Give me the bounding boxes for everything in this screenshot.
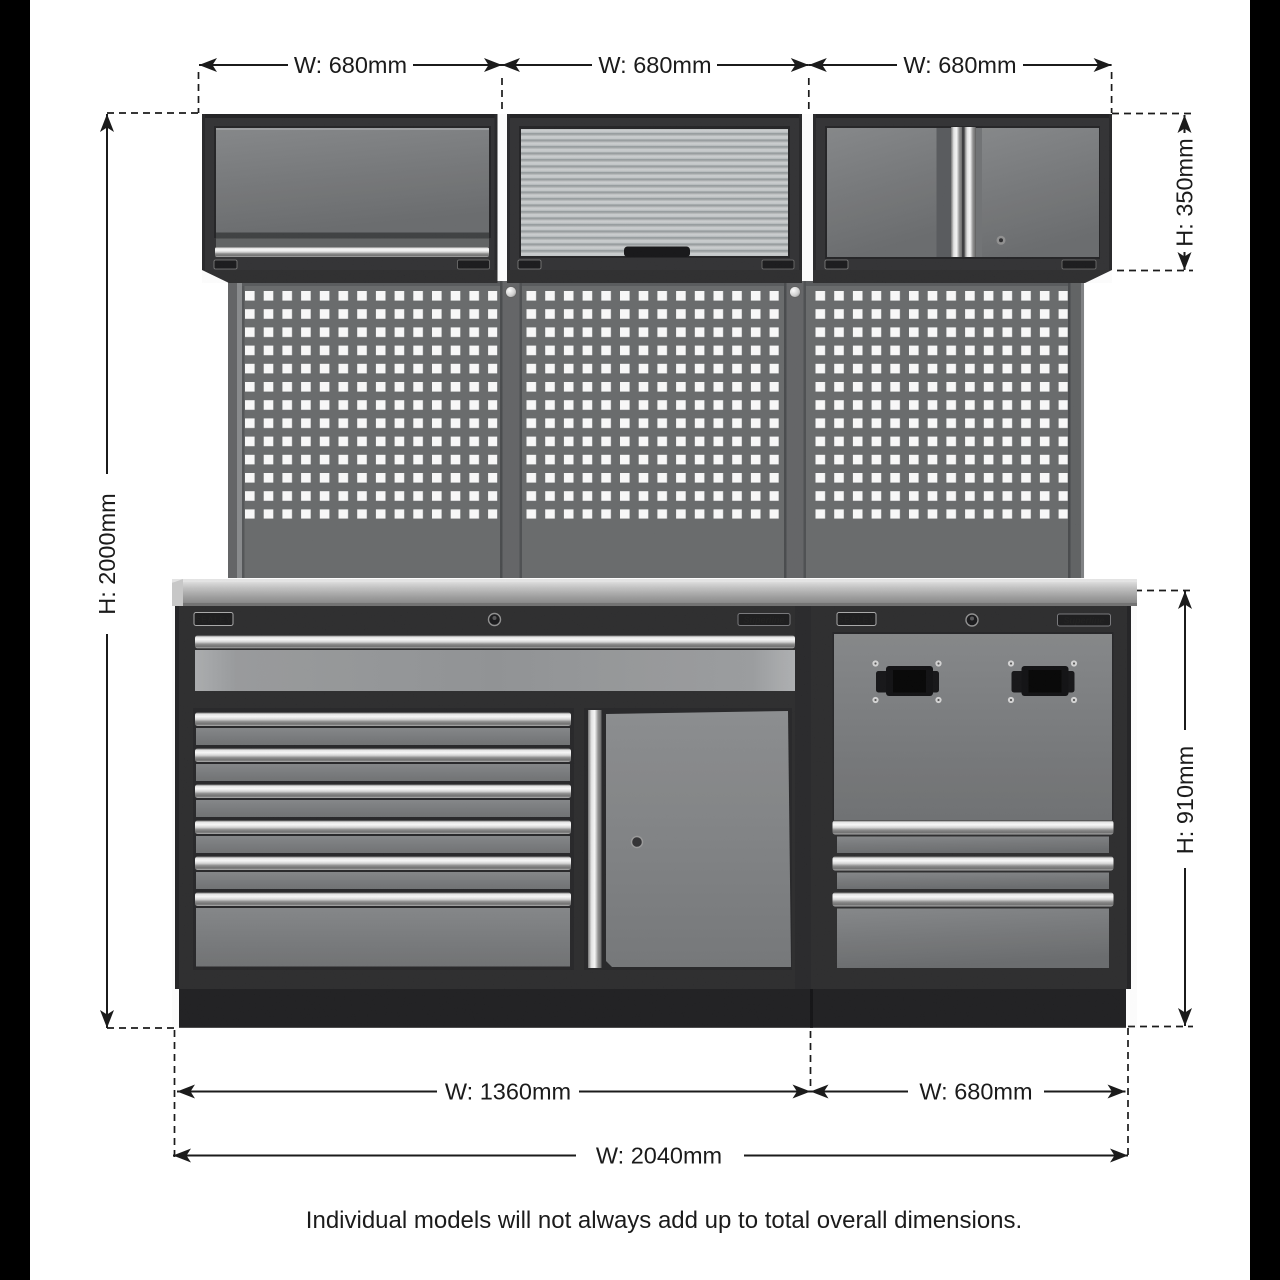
svg-text:W: 2040mm: W: 2040mm — [596, 1143, 722, 1169]
svg-text:H: 910mm: H: 910mm — [1172, 746, 1198, 854]
svg-text:W: 680mm: W: 680mm — [919, 1079, 1032, 1105]
svg-text:Individual models will not alw: Individual models will not always add up… — [306, 1207, 1022, 1234]
svg-text:H: 350mm: H: 350mm — [1172, 138, 1198, 246]
svg-text:W: 680mm: W: 680mm — [598, 52, 711, 78]
svg-text:W: 680mm: W: 680mm — [903, 52, 1016, 78]
svg-text:W: 1360mm: W: 1360mm — [445, 1079, 571, 1105]
svg-text:W: 680mm: W: 680mm — [294, 52, 407, 78]
svg-text:H: 2000mm: H: 2000mm — [94, 493, 120, 614]
